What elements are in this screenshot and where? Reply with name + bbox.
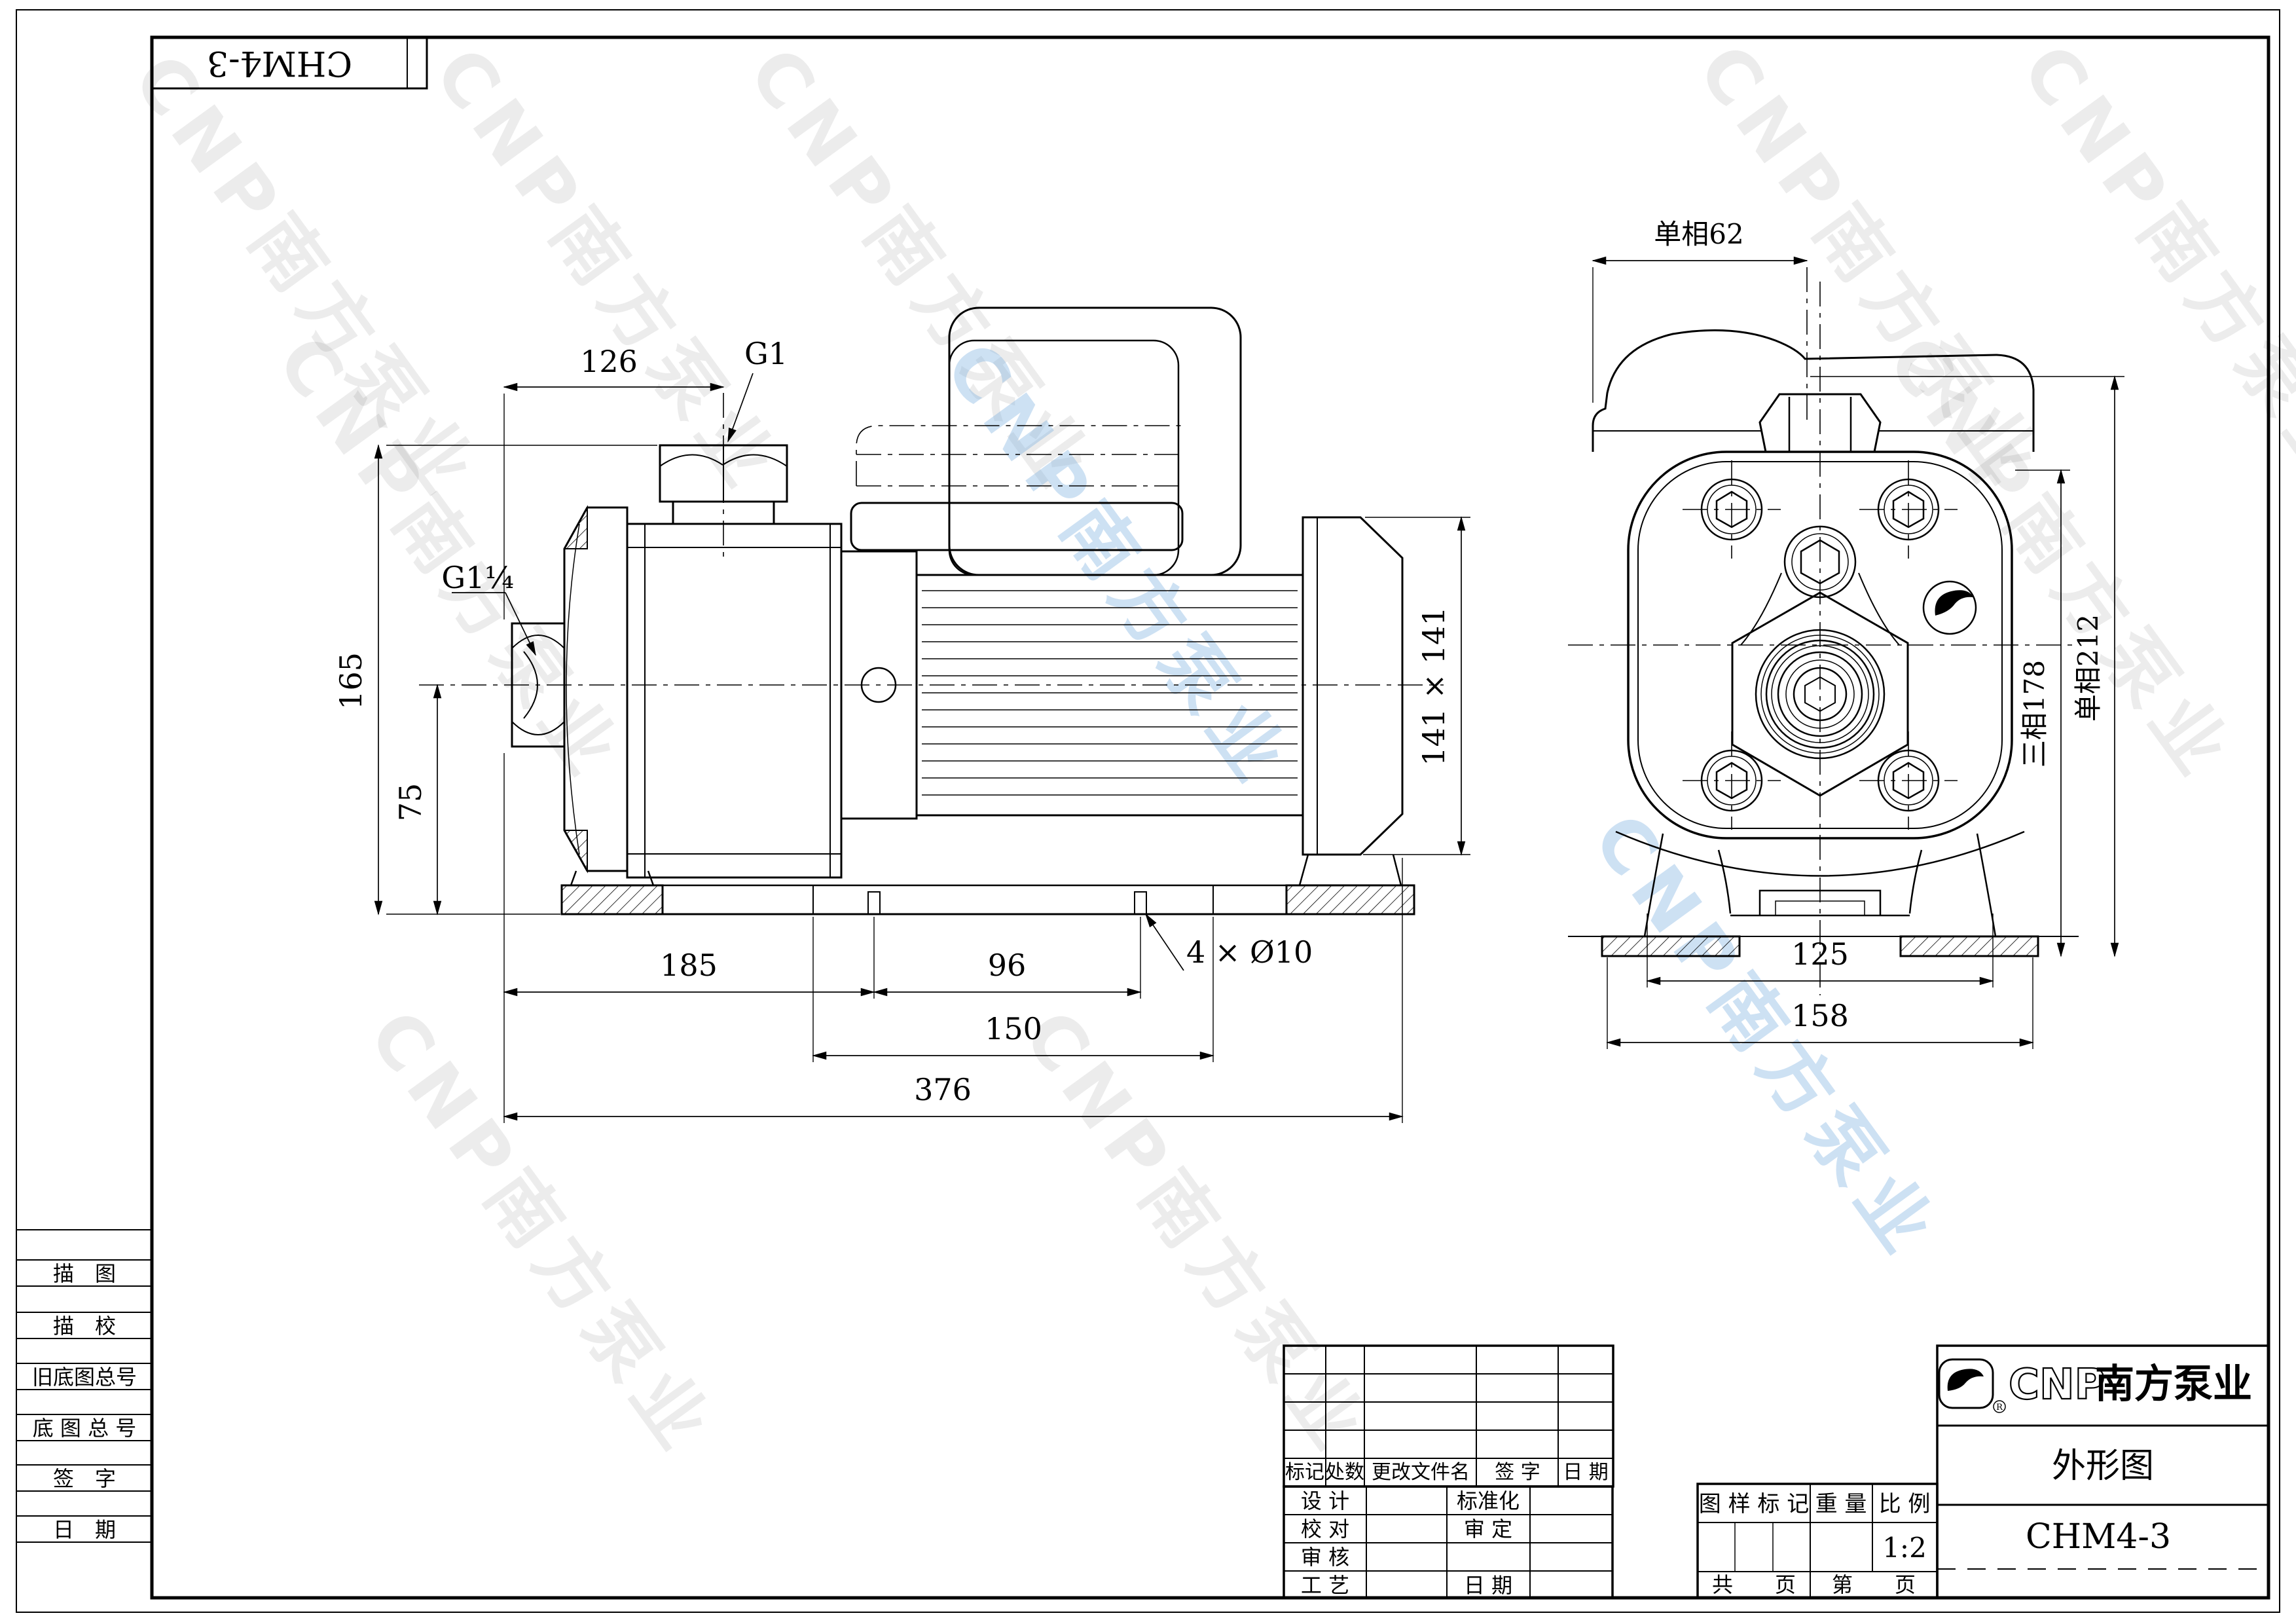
watermark: CNP南方泵业 — [353, 995, 731, 1471]
rev-header-docname: 更改文件名 — [1372, 1461, 1470, 1484]
rev-header-sign: 签 字 — [1495, 1461, 1540, 1484]
dim-single-phase-62: 单相62 — [1654, 218, 1743, 250]
sidebar-label-base-no: 底 图 总 号 — [33, 1416, 137, 1441]
model-number: CHM4-3 — [2026, 1517, 2171, 1557]
dim-75: 75 — [393, 783, 428, 822]
field-standardize: 标准化 — [1457, 1488, 1520, 1513]
scale-value: 1:2 — [1882, 1532, 1927, 1564]
corner-bolt — [1683, 460, 1781, 559]
sidebar-label-old-base-no: 旧底图总号 — [32, 1365, 137, 1390]
company-block: R CNP 南方泵业 外形图 CHM4-3 — [1937, 1346, 2269, 1598]
watermark: CNP南方泵业 — [2006, 29, 2296, 506]
stamp-header: 图 样 标 记 — [1699, 1491, 1809, 1517]
field-review: 审 核 — [1301, 1545, 1349, 1570]
dim-mounting-holes: 4 × Ø10 — [1186, 934, 1313, 970]
watermark-layer: CNP南方泵业 CNP南方泵业 CNP南方泵业 CNP南方泵业 CNP南方泵业 … — [117, 29, 2296, 1471]
corner-bolt — [1859, 460, 1958, 559]
sidebar-label-signature: 签 字 — [53, 1466, 116, 1491]
dim-g1-quarter: G1¼ — [441, 560, 514, 595]
base-feet — [562, 855, 1414, 914]
dim-125: 125 — [1791, 936, 1849, 972]
watermark-blue: CNP南方泵业 — [1577, 799, 1955, 1275]
watermark: CNP南方泵业 — [1008, 995, 1385, 1471]
drawing-sheet: CNP南方泵业 CNP南方泵业 CNP南方泵业 CNP南方泵业 CNP南方泵业 … — [0, 0, 2296, 1624]
rev-header-mark: 标记 — [1285, 1461, 1324, 1484]
page-no: 第 页 — [1832, 1572, 1916, 1597]
scale-header: 比 例 — [1879, 1491, 1931, 1517]
dim-185: 185 — [660, 948, 718, 983]
corner-bolt — [1683, 731, 1781, 830]
watermark: CNP南方泵业 — [261, 321, 639, 797]
dim-376: 376 — [914, 1072, 972, 1107]
watermark: CNP南方泵业 — [418, 33, 796, 509]
weight-header: 重 量 — [1815, 1491, 1867, 1517]
dim-g1: G1 — [744, 336, 788, 371]
dim-three-phase-178: 三相178 — [2018, 660, 2050, 767]
dim-96: 96 — [988, 948, 1027, 983]
field-process: 工 艺 — [1301, 1573, 1349, 1598]
field-proof: 校 对 — [1301, 1517, 1349, 1541]
brand-name-cn: 南方泵业 — [2095, 1361, 2252, 1407]
cnp-emblem-icon — [1923, 581, 1976, 634]
cnp-logo-icon: R — [1939, 1359, 2005, 1412]
personnel-table: 设 计 标准化 校 对 审 定 审 核 工 艺 日 期 — [1284, 1486, 1613, 1598]
field-design: 设 计 — [1301, 1488, 1349, 1513]
rev-header-count: 处数 — [1325, 1461, 1364, 1484]
pump-casing — [627, 524, 841, 877]
title-block: 标记 处数 更改文件名 签 字 日 期 设 计 标准化 校 对 审 定 审 核 … — [1284, 1346, 2269, 1598]
fan-cover — [1303, 517, 1402, 855]
watermark-blue: CNP南方泵业 — [929, 327, 1307, 803]
dim-141x141: 141 × 141 — [1416, 606, 1451, 766]
doc-title: 外形图 — [2052, 1447, 2154, 1486]
stamp-table: 图 样 标 记 重 量 比 例 1:2 共 页 第 页 — [1698, 1484, 1937, 1598]
registered-mark: R — [1996, 1403, 2003, 1412]
sidebar-label-trace-check: 描 校 — [53, 1314, 116, 1338]
drawing-canvas: CNP南方泵业 CNP南方泵业 CNP南方泵业 CNP南方泵业 CNP南方泵业 … — [0, 0, 2296, 1624]
field-date: 日 期 — [1464, 1573, 1512, 1598]
dim-126: 126 — [580, 344, 638, 379]
dim-158: 158 — [1791, 998, 1849, 1033]
dim-single-phase-212: 单相212 — [2072, 614, 2104, 722]
left-sidebar: 描 图 描 校 旧底图总号 底 图 总 号 签 字 日 期 — [16, 1230, 152, 1542]
sidebar-label-date: 日 期 — [53, 1517, 116, 1542]
sidebar-label-trace: 描 图 — [53, 1261, 116, 1286]
corner-bolt — [1859, 731, 1958, 830]
rev-header-date: 日 期 — [1563, 1461, 1609, 1484]
watermark: CNP南方泵业 — [117, 39, 495, 515]
model-number-rotated: CHM4-3 — [207, 43, 352, 83]
dim-165: 165 — [333, 652, 369, 710]
dim-150: 150 — [985, 1011, 1042, 1046]
total-pages: 共 页 — [1712, 1572, 1796, 1597]
field-approve: 审 定 — [1464, 1517, 1512, 1541]
side-view — [419, 308, 1444, 914]
brand-name: CNP — [2009, 1361, 2105, 1409]
